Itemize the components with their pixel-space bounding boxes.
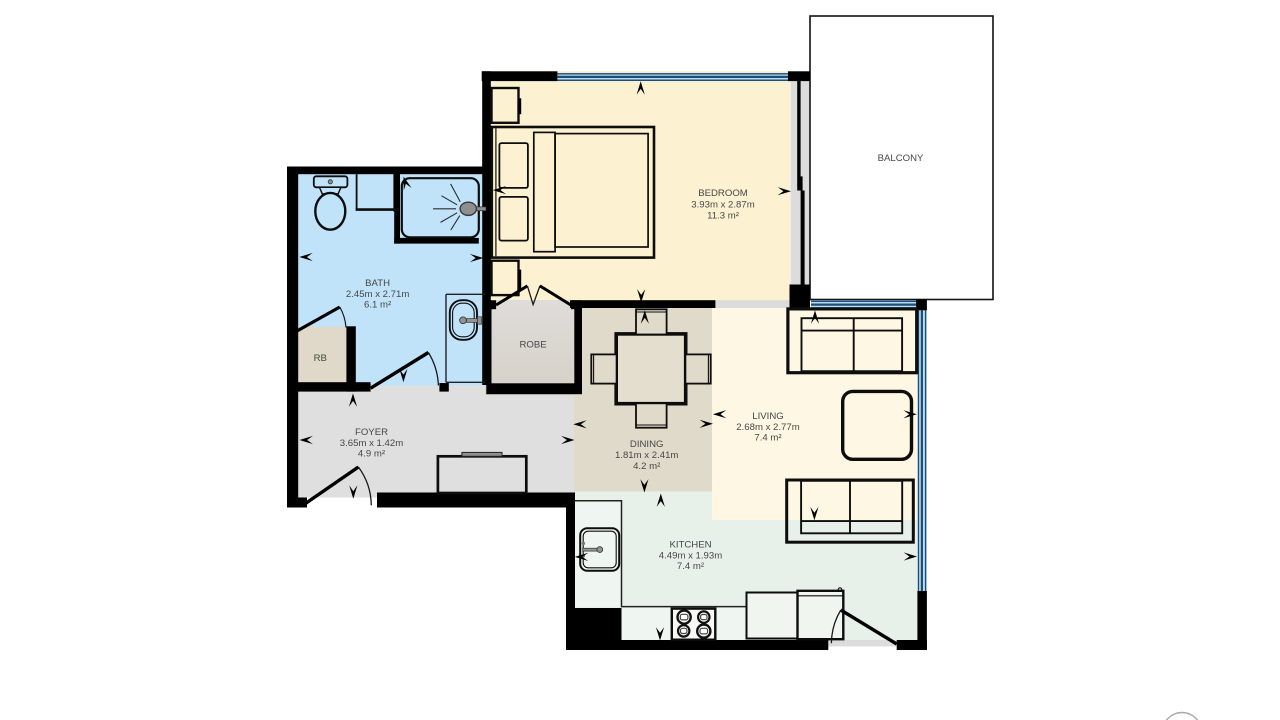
svg-text:7.4 m²: 7.4 m² (754, 433, 782, 444)
svg-text:3.93m x 2.87m: 3.93m x 2.87m (691, 199, 754, 210)
svg-text:4.9 m²: 4.9 m² (358, 449, 386, 460)
svg-text:2.68m x 2.77m: 2.68m x 2.77m (736, 422, 799, 433)
svg-text:ROBE: ROBE (519, 340, 546, 351)
svg-text:BALCONY: BALCONY (878, 153, 924, 164)
svg-text:FOYER: FOYER (355, 427, 388, 438)
svg-text:4.2 m²: 4.2 m² (633, 461, 661, 472)
svg-text:BEDROOM: BEDROOM (698, 188, 748, 199)
svg-text:11.3 m²: 11.3 m² (707, 210, 740, 221)
svg-text:1.81m x 2.41m: 1.81m x 2.41m (615, 450, 678, 461)
svg-text:DINING: DINING (630, 439, 664, 450)
svg-text:7.4 m²: 7.4 m² (677, 561, 705, 572)
svg-text:6.1 m²: 6.1 m² (364, 300, 392, 311)
svg-text:2.45m x 2.71m: 2.45m x 2.71m (346, 289, 409, 300)
svg-text:3.65m x 1.42m: 3.65m x 1.42m (340, 438, 403, 449)
svg-text:4.49m x 1.93m: 4.49m x 1.93m (659, 550, 722, 561)
svg-text:LIVING: LIVING (752, 411, 783, 422)
svg-text:RB: RB (314, 353, 327, 364)
svg-text:BATH: BATH (365, 278, 390, 289)
svg-text:KITCHEN: KITCHEN (669, 540, 711, 551)
